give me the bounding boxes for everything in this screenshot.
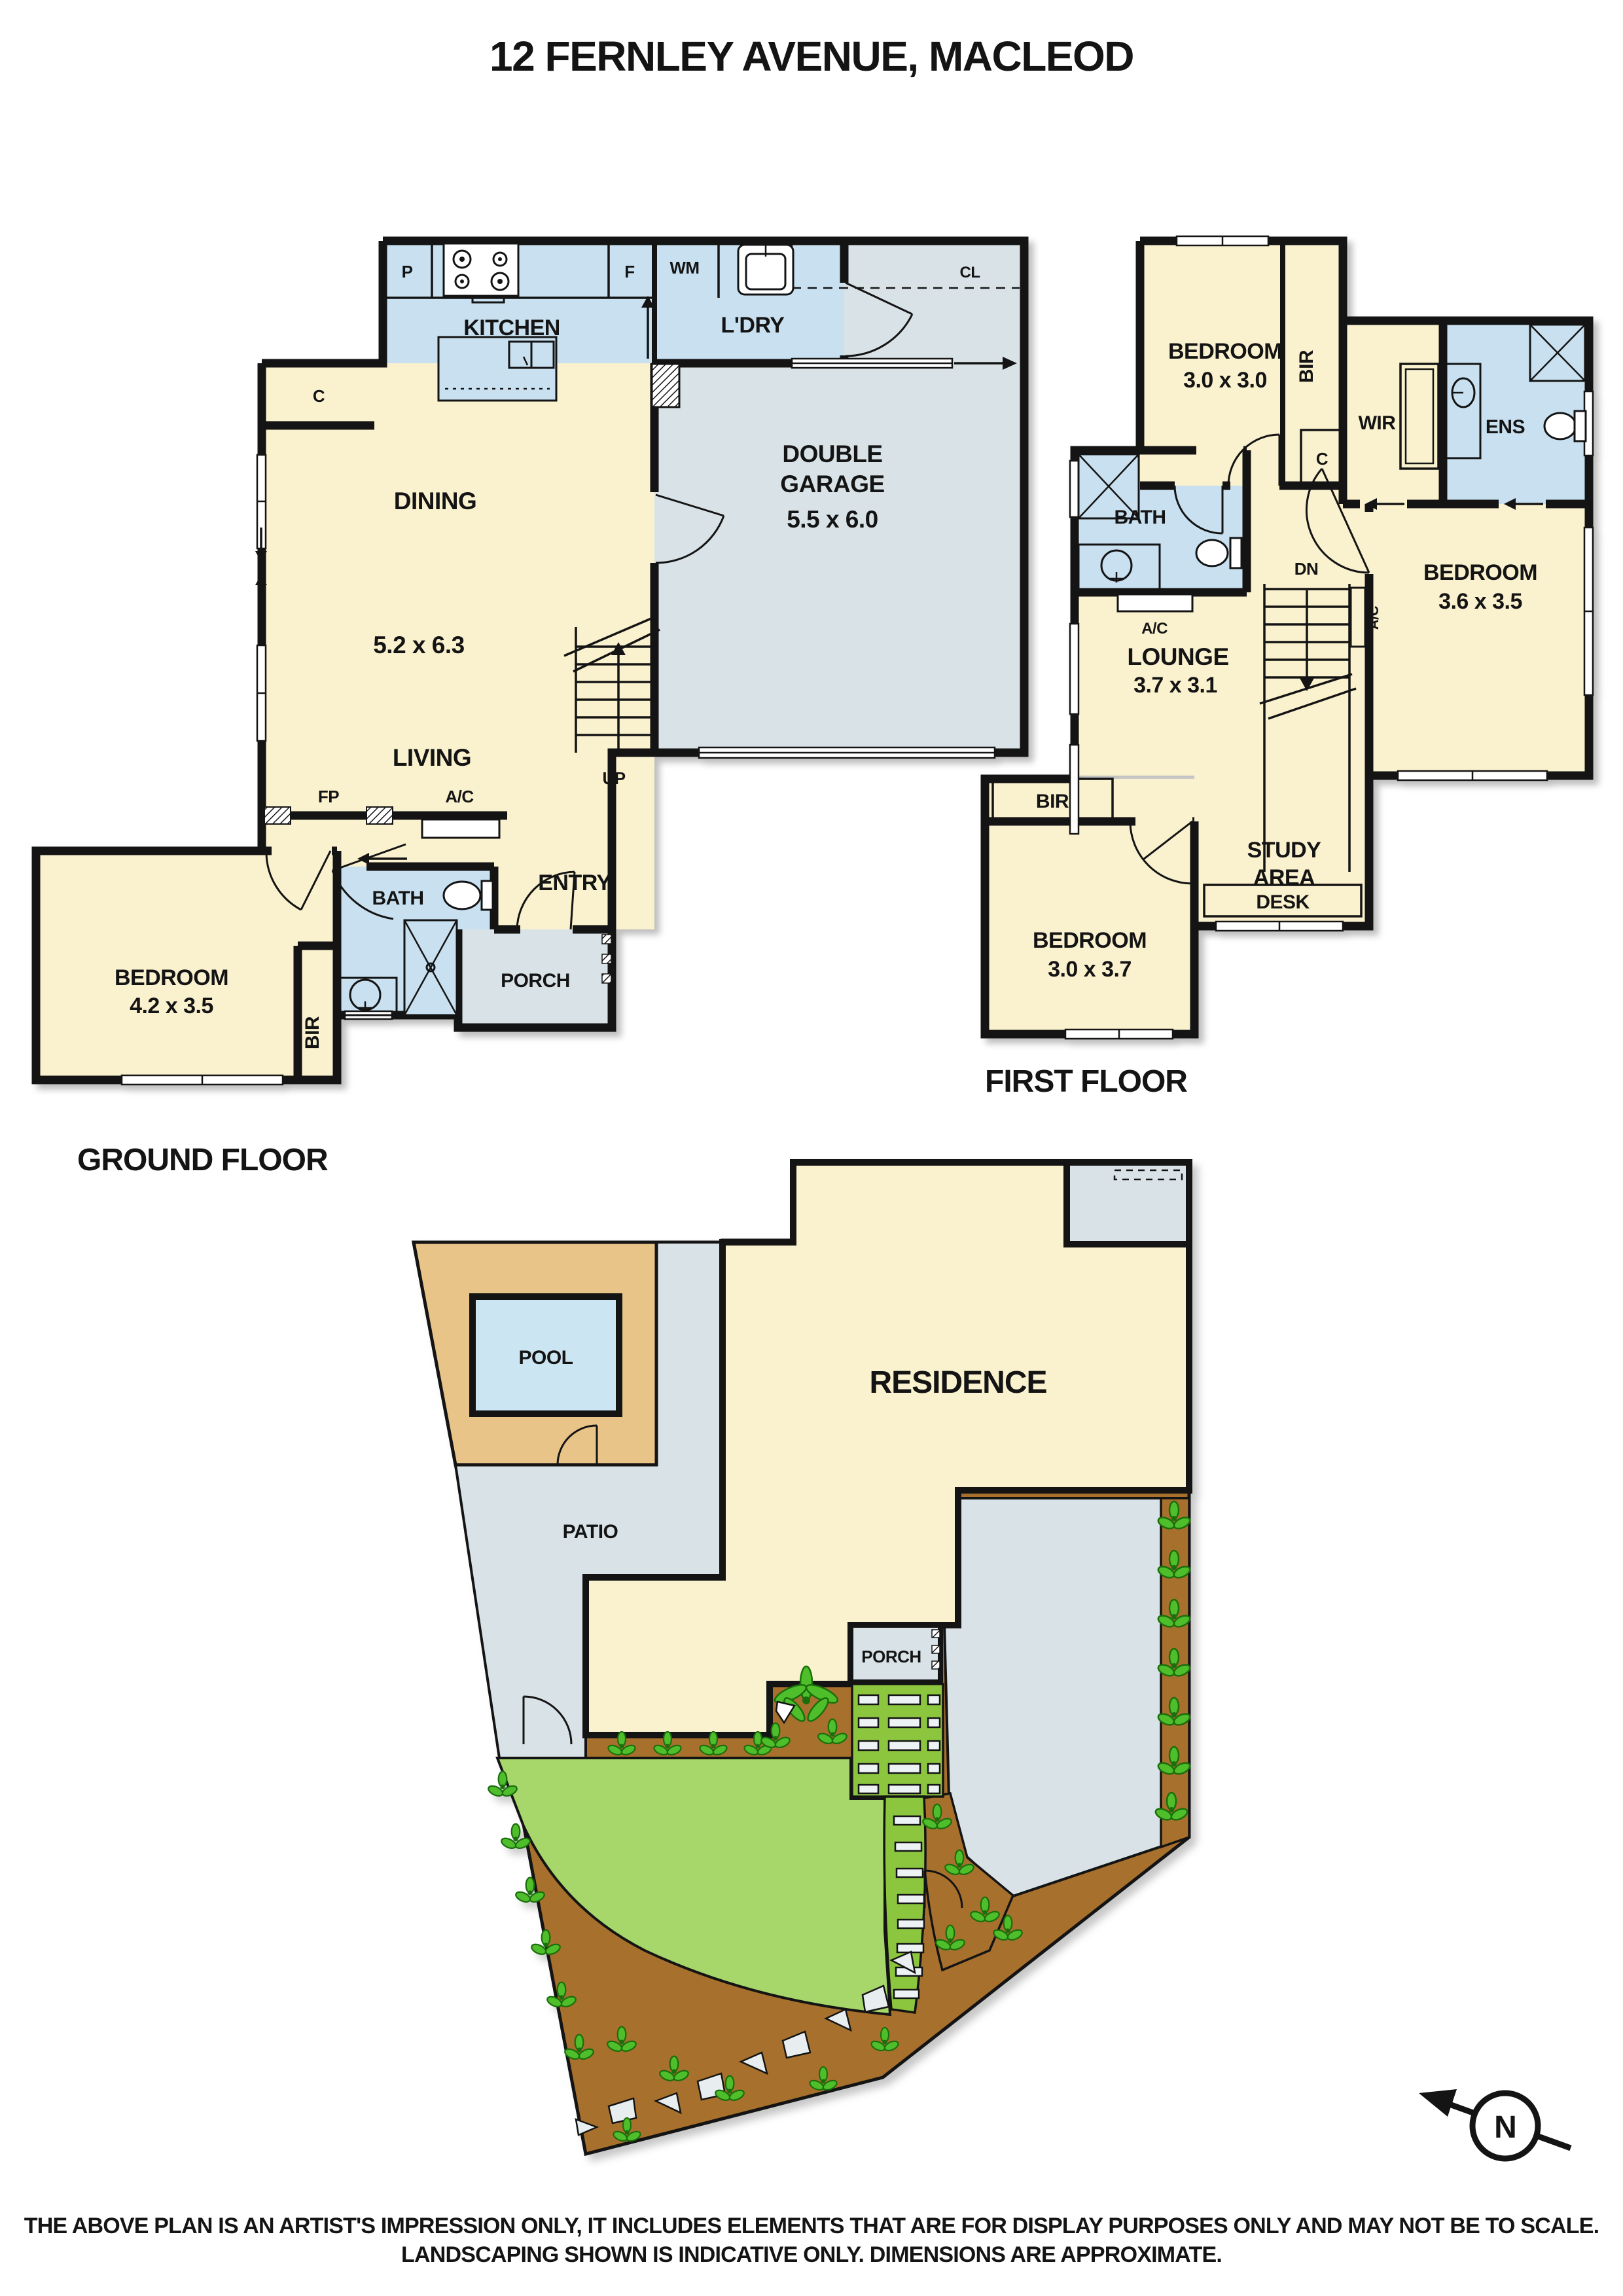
ground-garage-dim: 5.5 x 6.0 xyxy=(787,506,878,533)
floorplan-page: 12 FERNLEY AVENUE, MACLEOD CL xyxy=(0,0,1623,2296)
first-bedroom2-dim: 3.6 x 3.5 xyxy=(1438,589,1522,614)
page-title: 12 FERNLEY AVENUE, MACLEOD xyxy=(490,33,1133,80)
first-ac-bath-label: A/C xyxy=(1141,620,1168,637)
first-study-label2: AREA xyxy=(1253,865,1315,890)
ground-bir-label: BIR xyxy=(302,1016,323,1049)
ground-floor-plan: CL xyxy=(36,241,1024,1085)
ground-cl-label: CL xyxy=(960,264,980,281)
site-porch-label: PORCH xyxy=(861,1647,921,1666)
ground-hatched-post xyxy=(652,364,679,407)
ground-dining-dim: 5.2 x 6.3 xyxy=(373,632,465,658)
first-bedroom3-dim: 3.0 x 3.7 xyxy=(1048,957,1132,982)
site-pool-label: POOL xyxy=(518,1347,573,1369)
first-ac-stairs-label: A/C xyxy=(1365,605,1382,630)
ground-entry-label: ENTRY xyxy=(538,870,611,895)
first-lounge-label: LOUNGE xyxy=(1127,643,1228,670)
disclaimer-line1: THE ABOVE PLAN IS AN ARTIST'S IMPRESSION… xyxy=(24,2214,1599,2238)
first-dn-label: DN xyxy=(1294,559,1319,579)
ground-garage-label2: GARAGE xyxy=(780,471,884,497)
ground-bedroom-label: BEDROOM xyxy=(115,965,228,990)
site-residence-label: RESIDENCE xyxy=(869,1365,1046,1400)
first-bedroom2-label: BEDROOM xyxy=(1423,560,1537,585)
island-bench xyxy=(438,337,556,401)
ground-cupboard-label: C xyxy=(313,386,325,406)
ground-fp-label: FP xyxy=(318,787,339,806)
disclaimer-line2: LANDSCAPING SHOWN IS INDICATIVE ONLY. DI… xyxy=(401,2242,1222,2267)
site-plan: POOL PATIO RESIDENCE PORCH xyxy=(414,1162,1192,2154)
first-ens-label: ENS xyxy=(1486,416,1525,438)
first-wir-label: WIR xyxy=(1359,412,1397,434)
ground-laundry-label: L'DRY xyxy=(721,313,785,338)
ground-pantry-label: P xyxy=(402,262,413,281)
ground-up-label: UP xyxy=(602,768,625,788)
first-cupboard-label: C xyxy=(1316,449,1329,469)
first-bir-top-label: BIR xyxy=(1296,350,1317,383)
laundry-sink-icon xyxy=(738,245,793,295)
site-paver-path xyxy=(884,1797,925,2013)
ground-living-label: LIVING xyxy=(393,744,471,771)
ground-porch-label: PORCH xyxy=(501,970,570,992)
first-bir-bottom-label: BIR xyxy=(1036,791,1069,812)
ground-ac-unit xyxy=(422,819,499,838)
site-annex xyxy=(1067,1162,1189,1244)
first-bedroom1-dim: 3.0 x 3.0 xyxy=(1183,368,1267,393)
compass-north-label: N xyxy=(1494,2110,1516,2145)
site-driveway xyxy=(944,1498,1189,1897)
ground-porch-marks xyxy=(602,935,611,983)
first-study-label1: STUDY xyxy=(1247,838,1322,863)
ground-kitchen-label: KITCHEN xyxy=(463,315,560,340)
ground-ac-label: A/C xyxy=(445,787,474,806)
stove-icon xyxy=(444,243,518,302)
first-bedroom1-label: BEDROOM xyxy=(1168,339,1282,364)
ground-dining-label: DINING xyxy=(394,488,477,514)
floorplan-canvas: 12 FERNLEY AVENUE, MACLEOD CL xyxy=(0,0,1623,2296)
ground-wm-label: WM xyxy=(669,258,699,278)
ground-bedroom-dim: 4.2 x 3.5 xyxy=(130,994,213,1018)
first-bedroom2-area xyxy=(1369,504,1589,776)
ground-bath-label: BATH xyxy=(372,888,423,909)
ground-floor-title: GROUND FLOOR xyxy=(77,1143,328,1177)
first-floor-title: FIRST FLOOR xyxy=(985,1064,1187,1099)
first-lounge-dim: 3.7 x 3.1 xyxy=(1133,673,1217,698)
first-desk-label: DESK xyxy=(1256,891,1310,913)
first-ac-bath-unit xyxy=(1118,594,1192,611)
site-porch-marks xyxy=(932,1630,940,1669)
first-bedroom3-label: BEDROOM xyxy=(1033,928,1147,953)
ground-fridge-label: F xyxy=(624,262,634,281)
first-floor-plan: BEDROOM 3.0 x 3.0 BIR WIR ENS C BATH A/C… xyxy=(985,236,1593,1039)
ground-garage-label1: DOUBLE xyxy=(782,440,882,467)
north-compass: N xyxy=(1419,2089,1571,2159)
site-patio-label: PATIO xyxy=(563,1521,618,1543)
first-bath-label: BATH xyxy=(1114,507,1166,528)
